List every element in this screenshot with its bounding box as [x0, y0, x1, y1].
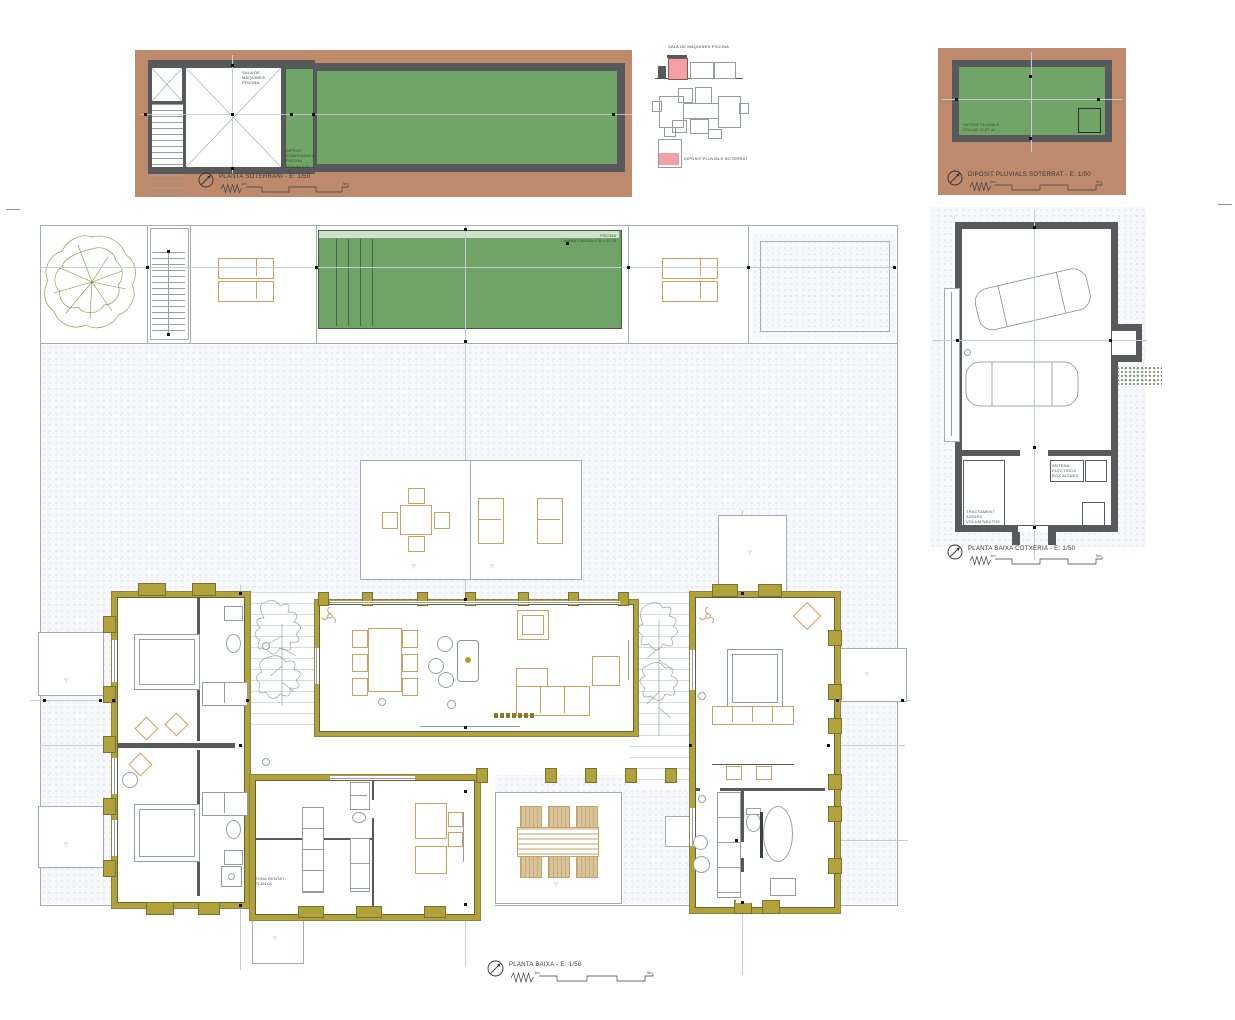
machine-room-block — [148, 60, 315, 174]
axis-markers — [0, 0, 1235, 1020]
outdoor-chairs — [0, 0, 1235, 1020]
drawing-sheet: DIPÒSITCOMPENSACIÓ PISCINAVOLUM 4,50 m³ … — [0, 0, 1235, 1020]
ceiling-fan-icon — [698, 606, 718, 626]
machine-diagram-title: SALA DE MÀQUINES PISCINA — [668, 44, 748, 49]
basin — [693, 835, 708, 850]
basement-plan: DIPÒSITCOMPENSACIÓ PISCINAVOLUM 4,50 m³ … — [0, 0, 1235, 1020]
garage-west-door — [944, 288, 960, 442]
tree — [38, 227, 146, 337]
rainwater-markers — [0, 0, 1235, 1020]
west-terrace-2 — [38, 806, 104, 868]
desk-stool — [756, 766, 772, 780]
south-terrace — [252, 905, 304, 964]
porch-piers — [0, 0, 1235, 1020]
living-colonnade — [0, 0, 1235, 1020]
gravel-court — [752, 233, 896, 338]
courtyard-west — [250, 592, 316, 728]
machine-room-label: SALA DE MÀQUINES PISCINA — [242, 70, 282, 86]
pouf-round — [437, 636, 453, 652]
courtyard-west-plant — [252, 596, 316, 716]
outdoor-table — [517, 827, 599, 857]
washbasin — [224, 606, 243, 621]
closet — [202, 682, 248, 706]
dining-chairs — [0, 0, 1235, 1020]
walkway — [117, 728, 825, 775]
pouf-round — [428, 658, 444, 674]
west-terrace-1 — [38, 632, 104, 696]
basement-earth — [135, 50, 632, 197]
compensation-tank — [285, 68, 314, 168]
sofa — [516, 686, 590, 716]
garage-markers — [0, 0, 1235, 1020]
svg-text:5m: 5m — [1096, 179, 1102, 184]
bath-terrace — [665, 816, 691, 847]
pool-label: PISCINALÀMINA D'AIGUA 4,35 x 20,35 — [540, 233, 616, 243]
pavilion-lounge-terrace — [470, 460, 582, 580]
ground-title: PLANTA BAIXA - E: 1/50 — [509, 962, 582, 968]
plot-boundary — [40, 225, 898, 906]
right-wing — [690, 592, 840, 913]
machine-room-highlight — [668, 58, 688, 80]
garden-stair — [150, 228, 189, 340]
armchair — [517, 610, 549, 640]
svg-text:5m: 5m — [343, 181, 349, 186]
rainwater-earth — [938, 48, 1126, 195]
north-terrace-right-wing — [718, 515, 787, 595]
toilet — [746, 813, 761, 832]
west-loungers — [0, 0, 1235, 1020]
scale-bar: 1m 5m — [968, 553, 1108, 567]
basement-stair — [152, 104, 183, 167]
chaise — [516, 668, 548, 690]
drain-symbols: ▽ ▽ ▽ ▽ ▽ ▽ ▽ ▽ — [0, 0, 1235, 1020]
side-table — [592, 656, 620, 686]
dining-table — [368, 628, 402, 692]
pouf — [128, 752, 152, 776]
north-arrow-icon — [487, 960, 504, 977]
floor-grille — [0, 0, 1235, 1020]
garage-walls — [955, 222, 1118, 532]
cars — [958, 228, 1114, 458]
courtyard-east-plant — [633, 596, 689, 746]
bath-cabinet — [717, 792, 741, 898]
electrical-box: ANTENA ELÈCTRICABOX AIGÜES — [1050, 460, 1084, 482]
right-wing-piers — [0, 0, 1235, 1020]
basement-pool-shell — [309, 63, 625, 172]
bathtub — [763, 806, 793, 862]
rainwater-plan: DIPÒSIT PLUVIALSVOLUM: 37,87 m³ DIPÒSIT … — [0, 0, 1235, 1020]
pavilion-loungers — [0, 0, 1235, 1020]
party-wall — [117, 743, 235, 748]
rainwater-label: DIPÒSIT PLUVIALSVOLUM: 37,87 m³ — [963, 122, 1023, 132]
compensation-tank-label: DIPÒSITCOMPENSACIÓ PISCINAVOLUM 4,50 m³ — [286, 148, 312, 174]
shower — [221, 866, 242, 887]
svg-text:1m: 1m — [534, 970, 540, 975]
machine-room-key-diagram: SALA DE MÀQUINES PISCINA DIPÒSIT PLUVIAL… — [0, 0, 1235, 1020]
svg-text:5m: 5m — [1096, 553, 1102, 558]
left-wing-piers — [0, 0, 1235, 1020]
laundry-units — [350, 782, 370, 810]
basement-stair-exterior — [148, 175, 184, 196]
pavilion-table-terrace — [360, 460, 472, 580]
pouf — [793, 602, 821, 630]
kitchen-island — [415, 846, 447, 874]
garden-ground — [41, 344, 896, 904]
garage-plan: TRACTAMENT AIGÜESVOLUM NEUTRE ANTENA ELÈ… — [0, 0, 1235, 1020]
desk-stool — [726, 766, 742, 780]
bed — [727, 649, 783, 708]
basement-markers — [0, 0, 1235, 1020]
bed — [134, 804, 200, 862]
scale-bar: 1m 5m — [968, 179, 1108, 193]
bed — [134, 634, 200, 690]
pouf — [164, 712, 188, 736]
north-arrow-icon — [947, 544, 963, 560]
laundry-basin — [352, 812, 366, 823]
garage-ground — [930, 207, 1146, 547]
vanity-screen — [760, 812, 763, 858]
ground-floor-plan: PISCINALÀMINA D'AIGUA 4,35 x 20,35 — [0, 0, 1235, 1020]
svg-text:5m: 5m — [647, 970, 653, 975]
basin — [693, 856, 710, 873]
bench — [770, 878, 796, 896]
east-terrace — [835, 648, 907, 702]
pouf-round — [438, 672, 454, 688]
shrub-patch — [1116, 366, 1162, 386]
washbasin — [224, 850, 243, 865]
left-wing — [112, 592, 250, 908]
closet — [202, 792, 248, 816]
pavilion-table-set — [0, 0, 1235, 1020]
walkway-south — [470, 775, 495, 906]
pouf-round — [122, 772, 138, 788]
toilet — [226, 820, 241, 839]
laundry-label: ZONA RENTAT-PLANXA — [255, 876, 299, 886]
wardrobe-row — [712, 706, 794, 725]
water-treatment-unit: TRACTAMENT AIGÜESVOLUM NEUTRE — [963, 460, 1005, 526]
rain-tank-mini-label: DIPÒSIT PLUVIALS SOTERRAT — [684, 156, 754, 161]
basement-title: PLANTA SOTERRANI - E: 1/50 — [219, 174, 310, 180]
svg-text:1m: 1m — [990, 553, 996, 558]
fireplace — [457, 640, 479, 682]
north-arrow-icon — [198, 172, 214, 188]
rainwater-title: DIPÒSIT PLUVIALS SOTERRAT - E: 1/50 — [968, 172, 1091, 178]
toilet — [226, 634, 241, 653]
basement-pool-water — [317, 71, 617, 164]
kitchen-counter — [302, 807, 324, 893]
east-loungers — [0, 0, 1235, 1020]
rainwater-access-hatch — [1078, 108, 1101, 133]
key-plan-mini — [0, 0, 1235, 1020]
machine-room — [186, 68, 281, 167]
living-room — [315, 600, 638, 736]
pouf — [134, 716, 158, 740]
garage-interior — [962, 229, 1111, 525]
meter-box — [1085, 460, 1107, 482]
service-box — [1082, 502, 1105, 526]
rain-tank-mini — [658, 139, 682, 168]
kitchen-wing — [250, 775, 480, 920]
kitchen-island — [415, 803, 447, 839]
kitchen-piers — [0, 0, 1235, 1020]
pool — [318, 230, 622, 329]
svg-text:1m: 1m — [241, 181, 247, 186]
courtyard-east — [630, 592, 690, 790]
north-arrow-icon — [947, 170, 963, 186]
scale-bar: 1m 5m — [219, 181, 354, 195]
ceiling-fan-icon — [320, 606, 340, 626]
machine-room-cell — [152, 68, 182, 101]
appliance-column — [350, 838, 370, 892]
scale-bar: 1m 5m — [509, 969, 659, 984]
rainwater-shell — [952, 60, 1112, 142]
rainwater-water — [959, 67, 1105, 135]
dining-terrace — [495, 792, 622, 904]
svg-text:1m: 1m — [990, 179, 996, 184]
garage-title: PLANTA BAIXA COTXERIA - E: 1/50 — [968, 546, 1075, 552]
